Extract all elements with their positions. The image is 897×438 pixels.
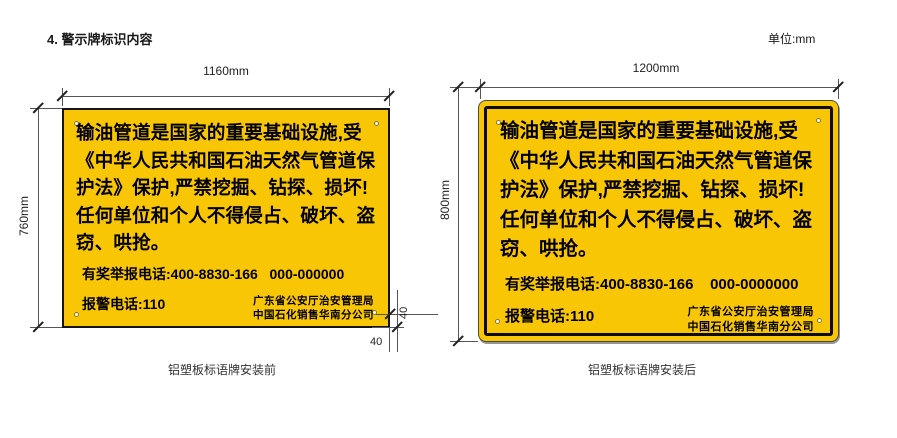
extension-line [389, 88, 390, 106]
spec-sheet-page: 4. 警示牌标识内容 单位:mm 1160mm 760mm 输油管道是国家的重要… [0, 0, 897, 438]
unit-label: 单位:mm [768, 30, 815, 47]
extension-line [372, 327, 404, 328]
hole-offset-label-v: 40 [398, 295, 410, 319]
police-phone-text: 报警电话:110 [82, 294, 165, 314]
warning-sign-after-frame: 输油管道是国家的重要基础设施,受 《中华人民共和国石油天然气管道保 护法》保护,… [478, 100, 839, 342]
body-line: 输油管道是国家的重要基础设施,受 [500, 117, 830, 147]
extension-line [62, 88, 63, 106]
body-line: 《中华人民共和国石油天然气管道保 [76, 147, 388, 175]
body-line: 窃、哄抢。 [500, 235, 830, 265]
extension-line [480, 79, 481, 99]
sign-bottom-row: 报警电话:110 广东省公安厅治安管理局 中国石化销售华南分公司 [505, 305, 814, 335]
hotline-text: 有奖举报电话:400-8830-166 000-0000000 [505, 273, 830, 294]
caption-after: 铝塑板标语牌安装后 [588, 361, 696, 378]
body-line: 窃、哄抢。 [76, 229, 388, 257]
sign-bottom-row: 报警电话:110 广东省公安厅治安管理局 中国石化销售华南分公司 [82, 294, 374, 322]
height-dimension-label: 800mm [438, 168, 452, 232]
body-line: 护法》保护,严禁挖掘、钻探、损坏! [500, 176, 830, 206]
sign-content: 输油管道是国家的重要基础设施,受 《中华人民共和国石油天然气管道保 护法》保护,… [64, 110, 388, 326]
width-dimension-line [480, 87, 838, 88]
hotline-text: 有奖举报电话:400-8830-166 000-000000 [82, 264, 388, 284]
height-dimension-label: 760mm [17, 184, 31, 248]
agency-line: 广东省公安厅治安管理局 [688, 305, 815, 320]
section-title: 4. 警示牌标识内容 [47, 29, 152, 48]
sign-body-text: 输油管道是国家的重要基础设施,受 《中华人民共和国石油天然气管道保 护法》保护,… [487, 109, 830, 265]
warning-sign-before: 输油管道是国家的重要基础设施,受 《中华人民共和国石油天然气管道保 护法》保护,… [62, 108, 390, 328]
body-line: 任何单位和个人不得侵占、破坏、盗 [500, 206, 830, 236]
agency-line: 中国石化销售华南分公司 [253, 308, 374, 322]
police-phone-text: 报警电话:110 [505, 305, 594, 326]
agency-text: 广东省公安厅治安管理局 中国石化销售华南分公司 [253, 294, 374, 322]
body-line: 护法》保护,严禁挖掘、钻探、损坏! [76, 174, 388, 202]
sign-body-text: 输油管道是国家的重要基础设施,受 《中华人民共和国石油天然气管道保 护法》保护,… [64, 110, 388, 257]
height-dimension-line [38, 108, 39, 328]
caption-before: 铝塑板标语牌安装前 [168, 361, 276, 378]
extension-line [389, 328, 390, 352]
body-line: 任何单位和个人不得侵占、破坏、盗 [76, 202, 388, 230]
agency-text: 广东省公安厅治安管理局 中国石化销售华南分公司 [688, 305, 815, 335]
agency-line: 广东省公安厅治安管理局 [253, 294, 374, 308]
warning-sign-after: 输油管道是国家的重要基础设施,受 《中华人民共和国石油天然气管道保 护法》保护,… [484, 106, 833, 336]
body-line: 《中华人民共和国石油天然气管道保 [500, 147, 830, 177]
width-dimension-label: 1200mm [606, 61, 706, 75]
hole-offset-label-h: 40 [370, 336, 382, 348]
height-dimension-line [458, 87, 459, 341]
extension-line [838, 79, 839, 99]
agency-line: 中国石化销售华南分公司 [688, 320, 815, 335]
body-line: 输油管道是国家的重要基础设施,受 [76, 119, 388, 147]
sign-content: 输油管道是国家的重要基础设施,受 《中华人民共和国石油天然气管道保 护法》保护,… [487, 109, 830, 333]
width-dimension-label: 1160mm [176, 64, 276, 78]
width-dimension-line [62, 96, 390, 97]
